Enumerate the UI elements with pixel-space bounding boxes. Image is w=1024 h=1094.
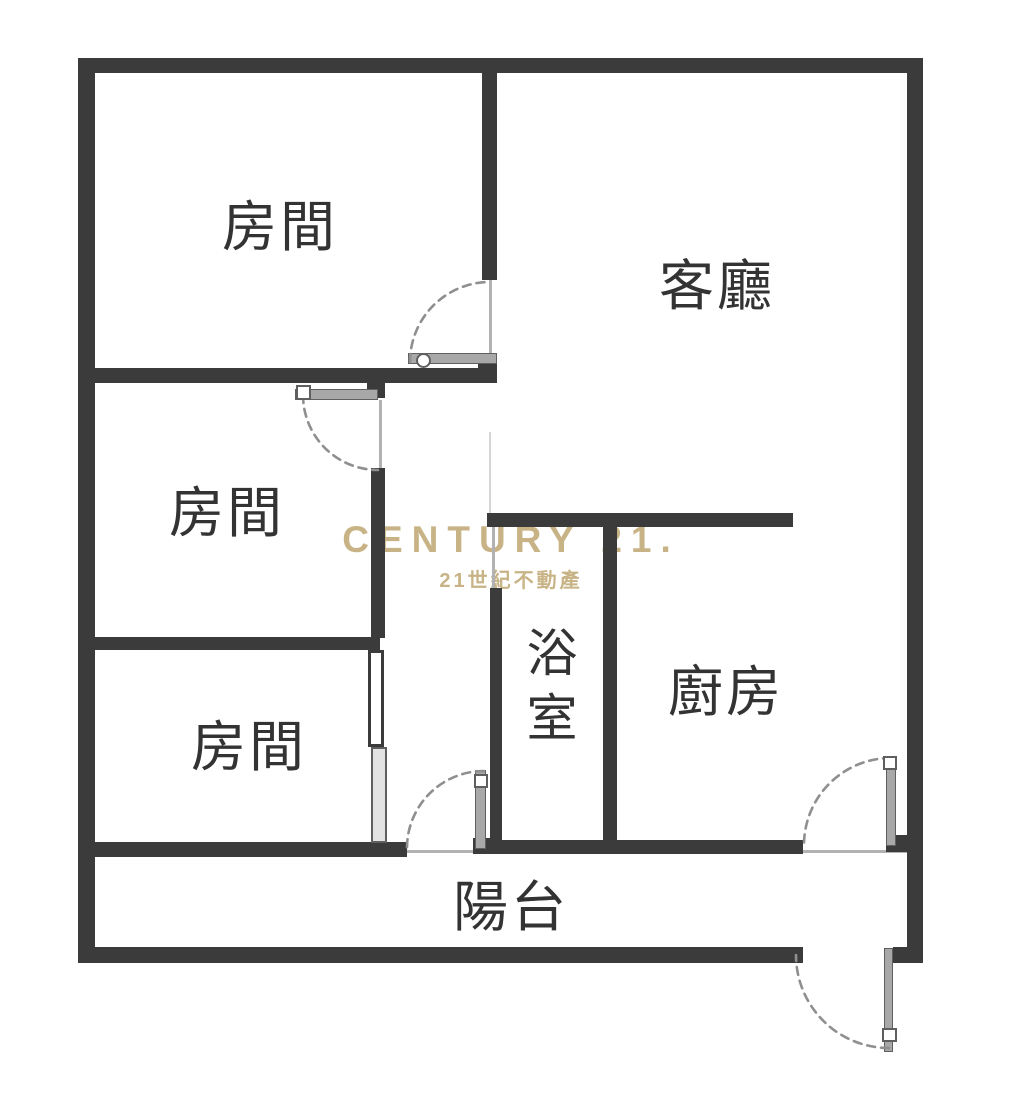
wall-bath-kitchen-top [487, 513, 793, 527]
wall-bedroom2-right [371, 468, 385, 638]
wall-bedroom1-bottom [78, 368, 497, 383]
door-handle-bedroom1 [416, 353, 431, 368]
century21-watermark: CENTURY 21. 21世紀不動產 [342, 519, 680, 593]
door-arc-exterior [796, 955, 889, 1048]
wall-bedroom3-bottom [78, 842, 407, 857]
wall-outer-bottom-right-stub [893, 947, 923, 963]
wall-bedroom2-bottom [78, 637, 380, 650]
door-arc-bedroom2 [303, 395, 378, 470]
corridor-opening-line [489, 432, 491, 513]
wall-bedroom3-pocket [368, 650, 384, 747]
room-label-bedroom-top: 房間 [222, 182, 338, 262]
wall-outer-top [78, 58, 918, 73]
room-label-bedroom-bottom: 房間 [191, 702, 307, 782]
room-label-living-room: 客廳 [659, 241, 775, 321]
room-label-balcony: 陽台 [453, 862, 569, 942]
room-label-bathroom: 浴室 [509, 626, 583, 756]
wall-bedroom1-right [482, 73, 497, 280]
wall-outer-left [78, 58, 95, 963]
floorplan: CENTURY 21. 21世紀不動產 [0, 0, 1024, 1094]
door-leaf-kitchen [886, 757, 896, 846]
sliding-door-bedroom3 [371, 747, 387, 843]
room-label-bedroom-mid: 房間 [169, 468, 285, 548]
door-line-bathroom [492, 527, 495, 588]
wall-bathroom-right [603, 513, 617, 853]
door-line-bedroom2 [379, 400, 382, 468]
door-arc-bedroom1 [410, 282, 490, 362]
wall-outer-bottom [78, 947, 803, 963]
wall-bathroom-left [490, 588, 502, 853]
door-handle-kitchen [883, 756, 897, 770]
wall-bath-kitchen-bottom [490, 840, 803, 854]
room-label-kitchen: 廚房 [668, 647, 784, 727]
wall-outer-right [907, 58, 923, 963]
door-line-bedroom1 [489, 280, 492, 358]
door-handle-bedroom2 [296, 385, 311, 400]
door-arc-kitchen [804, 758, 891, 845]
door-handle-balcony-inner [474, 774, 488, 788]
door-handle-exterior [882, 1028, 897, 1042]
door-arc-balcony-inner [407, 771, 484, 848]
watermark-brand-zh-text: 21世紀不動產 [342, 564, 680, 593]
